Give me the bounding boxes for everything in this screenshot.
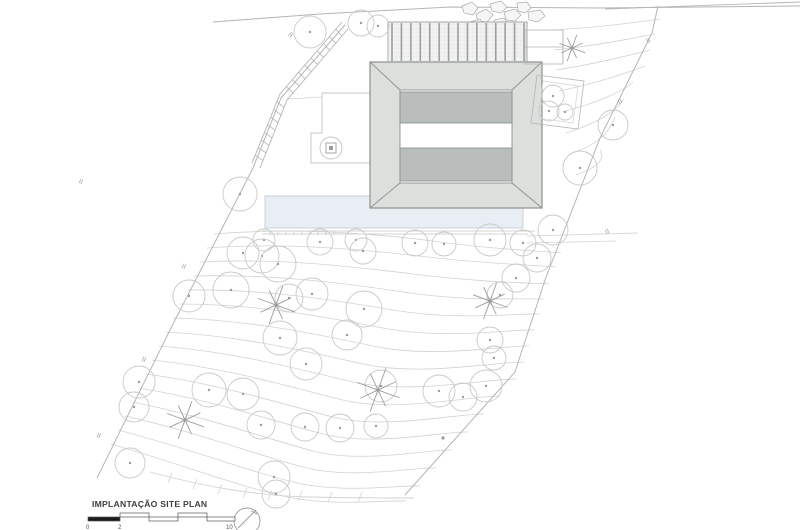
- rock: [517, 2, 531, 13]
- north-arrow-icon: [234, 508, 260, 530]
- drawing-title: IMPLANTAÇÃO SITE PLAN: [92, 499, 207, 509]
- scale-bar-segment: [149, 517, 178, 521]
- scale-bar-segment: [88, 517, 120, 521]
- rock: [490, 1, 507, 13]
- building: [370, 22, 542, 208]
- scale-label: 2: [118, 525, 122, 530]
- roof-band: [400, 148, 512, 181]
- palm-tree-icon: [357, 368, 399, 411]
- roof-band: [400, 92, 512, 123]
- scale-label: 0: [86, 525, 90, 530]
- slatted-deck: [388, 22, 527, 62]
- scale-bar-segment: [178, 513, 207, 517]
- site-plan-drawing: 0210: [0, 0, 800, 530]
- rock: [528, 10, 545, 22]
- palm-tree-icon: [167, 401, 204, 439]
- scale-bar-segment: [207, 517, 235, 521]
- site-plan-page: 0210 IMPLANTAÇÃO SITE PLAN: [0, 0, 800, 530]
- scale-bar: 0210: [86, 513, 235, 530]
- title-block: IMPLANTAÇÃO SITE PLAN: [92, 499, 207, 509]
- scale-label: 10: [226, 525, 233, 530]
- scale-bar-segment: [120, 513, 149, 517]
- palm-tree-icon: [473, 283, 508, 319]
- stairs-path: [252, 22, 348, 168]
- rock: [462, 2, 478, 15]
